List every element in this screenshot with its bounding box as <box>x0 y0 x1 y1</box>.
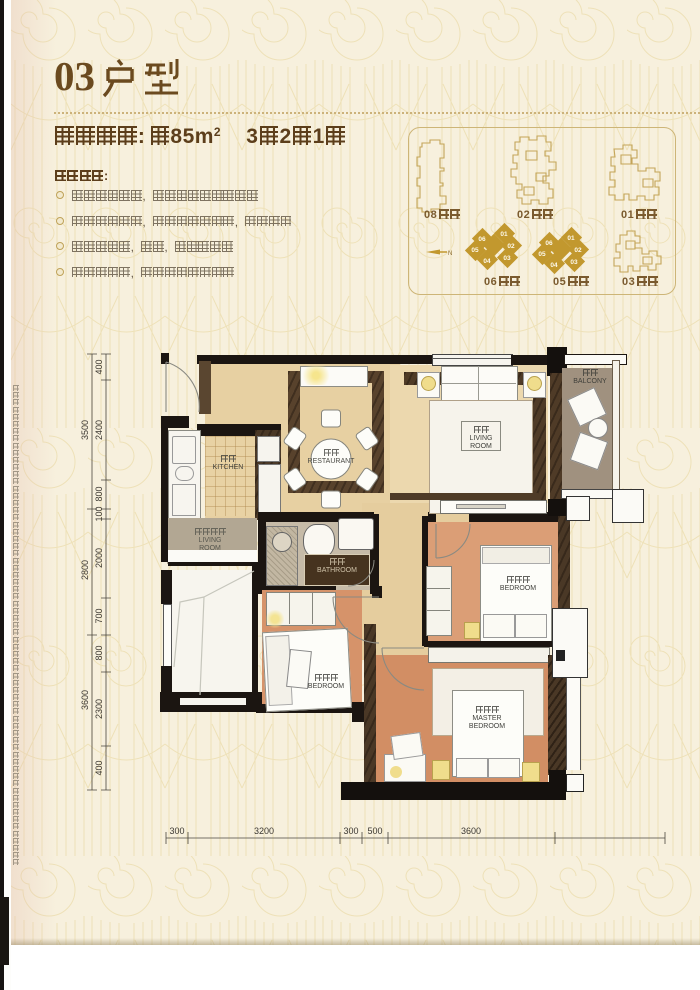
svg-text:2000: 2000 <box>94 548 104 568</box>
svg-text:3600: 3600 <box>461 826 481 836</box>
svg-text:3500: 3500 <box>80 420 90 440</box>
svg-text:500: 500 <box>367 826 382 836</box>
svg-text:800: 800 <box>94 486 104 501</box>
svg-text:3600: 3600 <box>80 690 90 710</box>
svg-text:100: 100 <box>94 506 104 521</box>
svg-text:300: 300 <box>169 826 184 836</box>
svg-text:800: 800 <box>94 645 104 660</box>
svg-text:2300: 2300 <box>94 699 104 719</box>
svg-text:3200: 3200 <box>254 826 274 836</box>
svg-text:2400: 2400 <box>94 420 104 440</box>
svg-text:2800: 2800 <box>80 560 90 580</box>
svg-text:300: 300 <box>343 826 358 836</box>
svg-text:700: 700 <box>94 608 104 623</box>
svg-text:400: 400 <box>94 760 104 775</box>
svg-text:400: 400 <box>94 359 104 374</box>
